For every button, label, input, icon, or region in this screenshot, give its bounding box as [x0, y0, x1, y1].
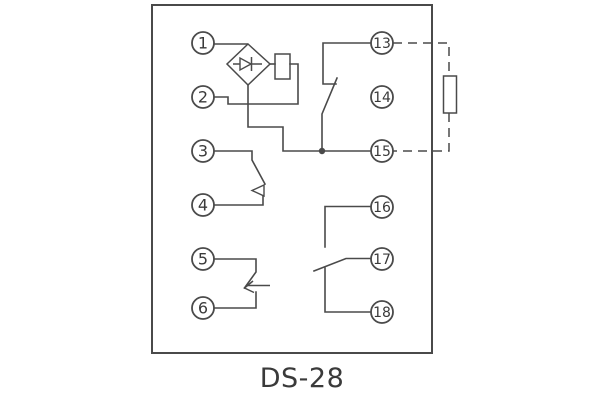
- wire-bridge-to-terminal15: [248, 85, 371, 151]
- terminal-17: 17: [371, 248, 393, 270]
- terminal-13: 13: [371, 32, 393, 54]
- terminal-15: 15: [371, 140, 393, 162]
- terminal-18: 18: [371, 301, 393, 323]
- terminal-17-label: 17: [373, 252, 391, 268]
- terminal-5: 5: [192, 248, 214, 270]
- wire-coil-to-terminal2: [214, 64, 298, 104]
- contact-4-lead: [214, 196, 263, 205]
- terminal-6: 6: [192, 297, 214, 319]
- terminal-14: 14: [371, 86, 393, 108]
- terminal-15-label: 15: [373, 144, 391, 160]
- terminal-3: 3: [192, 140, 214, 162]
- relay-terminal-diagram: 1 2 3 4 5 6 13 14: [0, 0, 600, 400]
- contact-17-blade: [314, 259, 371, 272]
- contact-16-lead: [325, 207, 371, 248]
- terminal-1-label: 1: [198, 34, 208, 53]
- terminal-6-label: 6: [198, 299, 208, 318]
- contact-3-blade: [214, 151, 265, 184]
- terminal-4: 4: [192, 194, 214, 216]
- terminal-14-label: 14: [373, 90, 391, 106]
- diode-icon: [240, 58, 251, 70]
- contact-13-15-blade: [322, 78, 337, 151]
- relay-coil-icon: [275, 54, 290, 79]
- terminal-16: 16: [371, 196, 393, 218]
- terminal-5-label: 5: [198, 250, 208, 269]
- terminal-4-label: 4: [198, 196, 208, 215]
- contact-4-tip-icon: [252, 185, 264, 196]
- schematic-page: 1 2 3 4 5 6 13 14: [0, 0, 600, 400]
- terminal-13-label: 13: [373, 36, 391, 52]
- contact-18-lead: [325, 268, 371, 312]
- external-resistor-icon: [444, 76, 457, 113]
- terminal-1: 1: [192, 32, 214, 54]
- contact-6-lead: [214, 292, 256, 308]
- terminal-3-label: 3: [198, 142, 208, 161]
- terminal-2-label: 2: [198, 88, 208, 107]
- terminal-18-label: 18: [373, 305, 391, 321]
- terminal-2: 2: [192, 86, 214, 108]
- model-label: DS-28: [260, 363, 345, 394]
- terminal-16-label: 16: [373, 200, 391, 216]
- contact-13-fixed-lead: [323, 43, 371, 84]
- external-resistor-dashed-link: [393, 43, 449, 151]
